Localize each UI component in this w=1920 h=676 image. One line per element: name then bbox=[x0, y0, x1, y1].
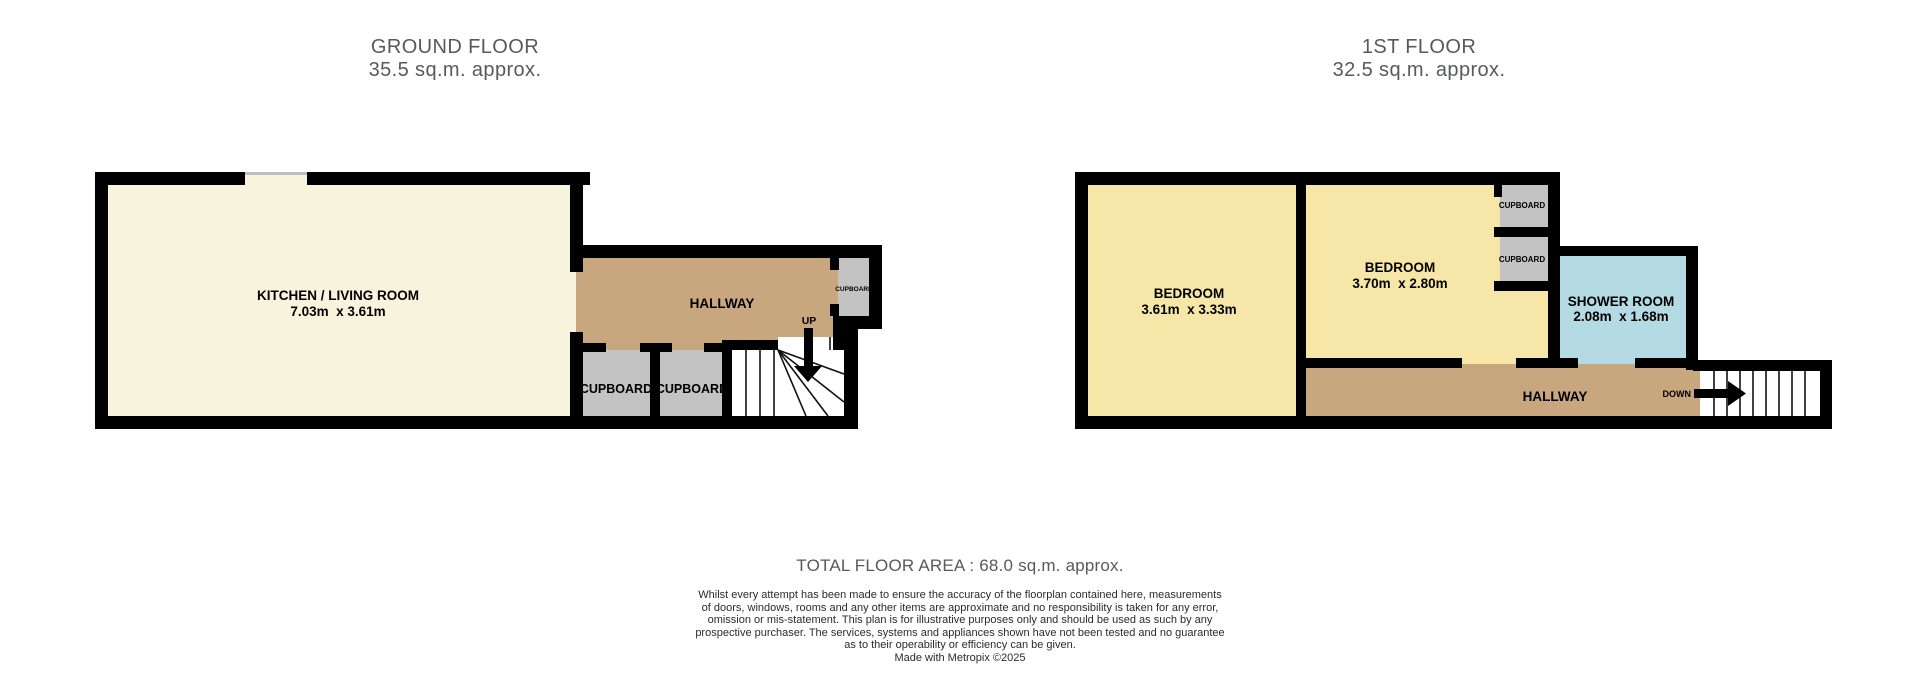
first-hallway-label: HALLWAY bbox=[1523, 389, 1588, 404]
ground-floor-plan: KITCHEN / LIVING ROOM 7.03m x 3.61m HALL… bbox=[95, 172, 882, 429]
ground-stairs-area bbox=[732, 350, 844, 416]
disclaimer: Whilst every attempt has been made to en… bbox=[0, 589, 1920, 665]
shower-room-dimensions: 2.08m x 1.68m bbox=[1573, 309, 1668, 324]
first-cupboard-1-label: CUPBOARD bbox=[1499, 201, 1545, 210]
shower-room-label: SHOWER ROOM bbox=[1568, 294, 1675, 309]
bedroom-2-dimensions: 3.70m x 2.80m bbox=[1352, 276, 1447, 291]
up-label: UP bbox=[802, 315, 817, 327]
bedroom-1-dimensions: 3.61m x 3.33m bbox=[1141, 302, 1236, 317]
kitchen-living-room-dimensions: 7.03m x 3.61m bbox=[290, 304, 385, 319]
bedroom-1-label: BEDROOM bbox=[1154, 286, 1225, 301]
down-label: DOWN bbox=[1663, 389, 1692, 399]
disclaimer-line: as to their operability or efficiency ca… bbox=[0, 639, 1920, 652]
metropix-credit: Made with Metropix ©2025 bbox=[0, 652, 1920, 665]
bedroom-2-label: BEDROOM bbox=[1365, 260, 1436, 275]
floorplan-page: GROUND FLOOR 35.5 sq.m. approx. 1ST FLOO… bbox=[0, 0, 1920, 676]
ground-cupboard-1-label: CUPBOARD bbox=[580, 382, 652, 396]
window-gap bbox=[245, 172, 307, 175]
disclaimer-line: of doors, windows, rooms and any other i… bbox=[0, 602, 1920, 615]
disclaimer-line: Whilst every attempt has been made to en… bbox=[0, 589, 1920, 602]
ground-small-cupboard-label: CUPBOARD bbox=[835, 286, 873, 293]
first-cupboard-2-label: CUPBOARD bbox=[1499, 255, 1545, 264]
first-hallway-area bbox=[1302, 364, 1700, 418]
disclaimer-line: prospective purchaser. The services, sys… bbox=[0, 627, 1920, 640]
kitchen-living-room-label: KITCHEN / LIVING ROOM bbox=[257, 288, 419, 303]
ground-cupboard-2-label: CUPBOARD bbox=[656, 382, 728, 396]
disclaimer-line: omission or mis-statement. This plan is … bbox=[0, 614, 1920, 627]
first-floor-plan: BEDROOM 3.61m x 3.33m BEDROOM 3.70m x 2.… bbox=[1075, 172, 1832, 429]
ground-hallway-label: HALLWAY bbox=[690, 296, 755, 311]
total-floor-area: TOTAL FLOOR AREA : 68.0 sq.m. approx. bbox=[0, 556, 1920, 576]
